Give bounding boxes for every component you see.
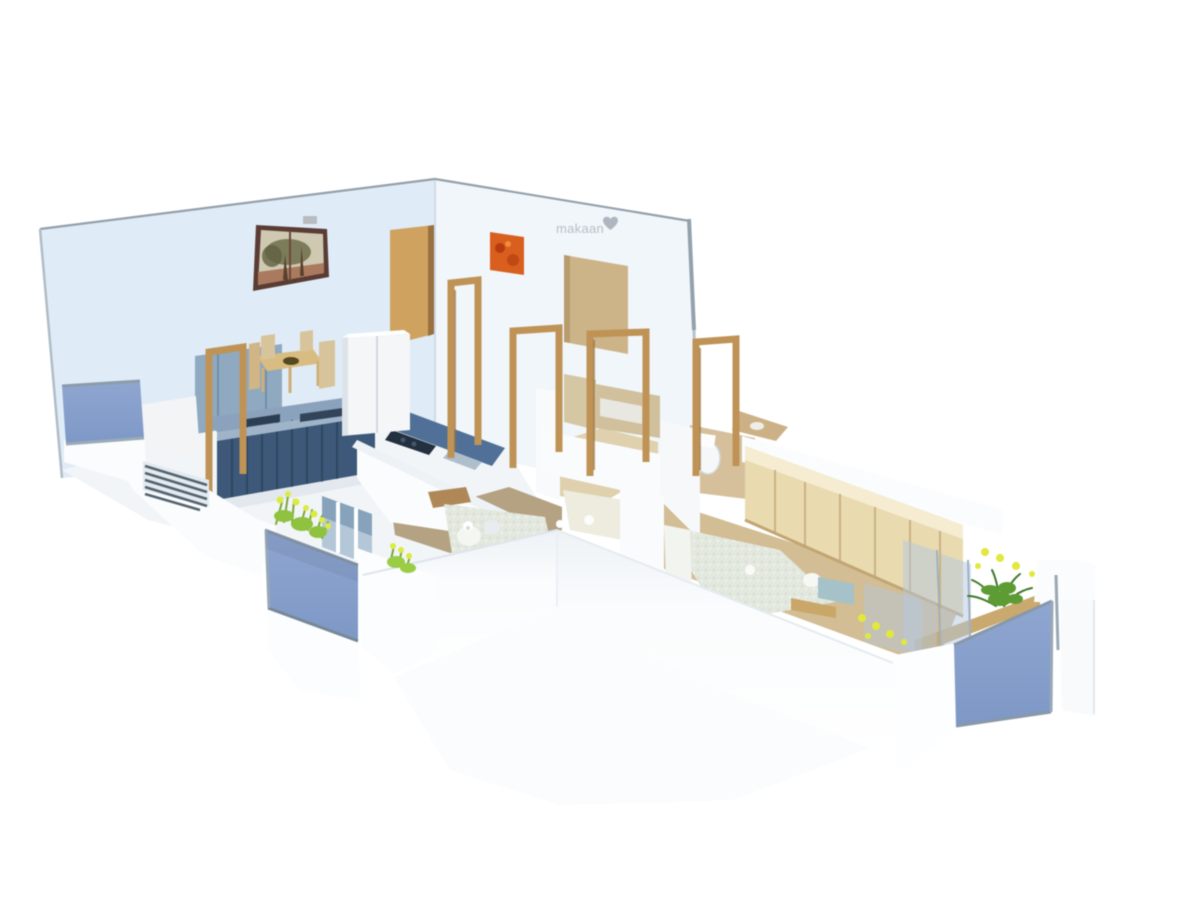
svg-text:makaan: makaan <box>556 221 604 236</box>
